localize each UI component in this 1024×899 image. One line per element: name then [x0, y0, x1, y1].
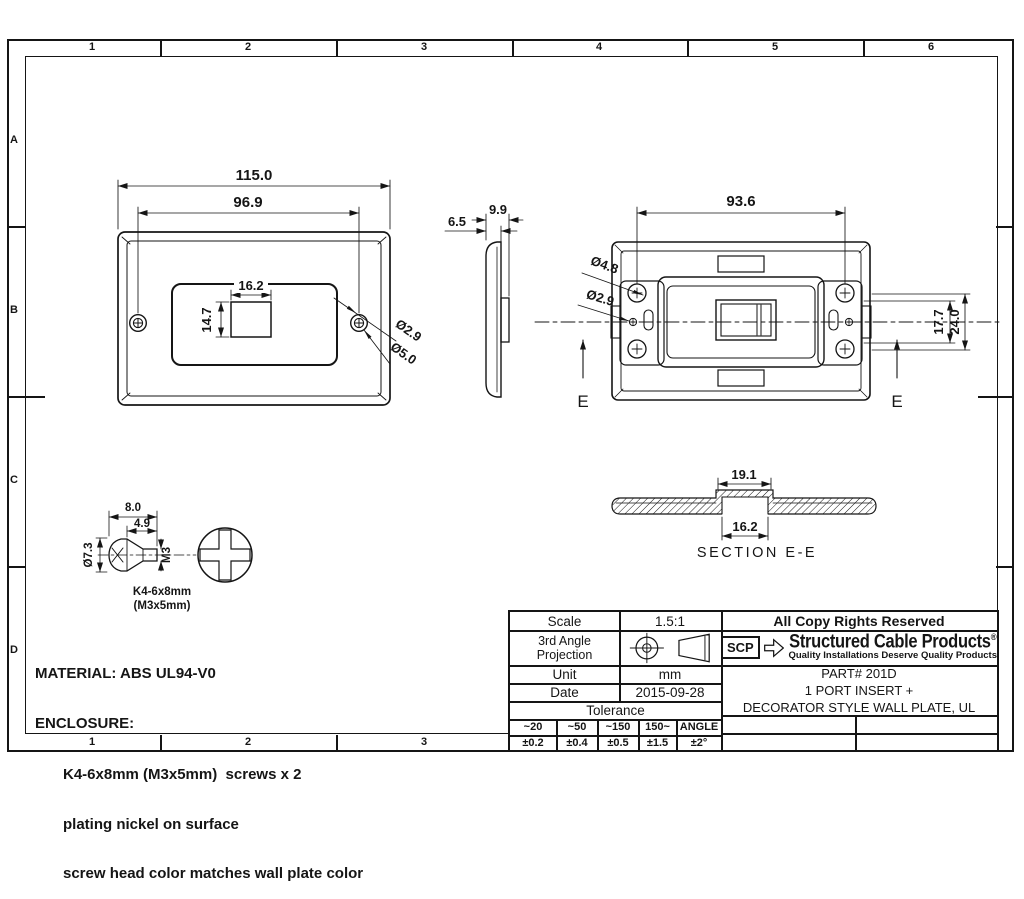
- front-screw-right: [351, 315, 368, 332]
- rear-bracket-right: [818, 281, 871, 365]
- dim-front-hole-span: 96.9: [233, 194, 262, 211]
- scale-label: Scale: [510, 612, 619, 630]
- note-item-screws: K4-6x8mm (M3x5mm) screws x 2: [35, 767, 363, 784]
- tol-value-20: ±0.2: [510, 735, 556, 750]
- tol-value-angle: ±2°: [677, 735, 721, 750]
- part-number: PART# 201D: [821, 665, 896, 682]
- rear-view: 93.6 Ø4.8 Ø2.9 17.7 24.0 E E: [535, 193, 1002, 411]
- dim-side-depth-total: 9.9: [489, 202, 507, 217]
- part-desc-1: 1 PORT INSERT +: [805, 682, 914, 699]
- screw-detail: 8.0 4.9 Ø7.3 M3 K4-6x8mm (M3x5mm): [83, 502, 252, 612]
- brand-tagline: Quality Installations Deserve Quality Pr…: [788, 651, 997, 661]
- tol-header-angle: ANGLE: [677, 719, 721, 735]
- dim-screw-head: Ø7.3: [83, 543, 95, 568]
- dim-rear-boss-span: 93.6: [726, 193, 755, 210]
- dim-screw-thread: M3: [161, 547, 173, 563]
- date-value: 2015-09-28: [619, 683, 721, 701]
- tolerance-label: Tolerance: [510, 701, 721, 719]
- title-block: Scale 1.5:1 3rd Angle Projection Unit mm…: [508, 610, 999, 752]
- note-item-plating: plating nickel on surface: [35, 817, 363, 834]
- copyright-text: All Copy Rights Reserved: [721, 612, 997, 630]
- third-angle-projection-icon: [620, 631, 720, 665]
- tol-header-150plus: 150~: [639, 719, 676, 735]
- tol-header-150: ~150: [598, 719, 638, 735]
- dim-side-depth-body: 6.5: [448, 214, 466, 229]
- dim-front-opening-width: 16.2: [238, 278, 263, 293]
- note-material: MATERIAL: ABS UL94-V0: [35, 666, 363, 683]
- dim-front-opening-height: 14.7: [199, 307, 214, 332]
- brand-text-wrap: Structured Cable Products® Quality Insta…: [788, 634, 997, 661]
- date-label: Date: [510, 683, 619, 701]
- side-view: 9.9 6.5: [445, 202, 523, 397]
- logo-arrow-icon: [764, 636, 785, 660]
- unit-label: Unit: [510, 665, 619, 683]
- note-item-color: screw head color matches wall plate colo…: [35, 866, 363, 883]
- dim-rear-bracket-outer: 24.0: [947, 309, 962, 334]
- screw-head-front-view: [198, 528, 252, 582]
- projection-line2: Projection: [537, 648, 593, 662]
- section-caption: SECTION E-E: [697, 545, 817, 561]
- note-enclosure: ENCLOSURE:: [35, 716, 363, 733]
- dim-section-opening-width: 16.2: [732, 519, 757, 534]
- dim-screw-length: 8.0: [125, 502, 141, 514]
- unit-value: mm: [619, 665, 721, 683]
- projection-line1: 3rd Angle: [538, 634, 591, 648]
- dim-section-boss-width: 19.1: [731, 467, 756, 482]
- section-marker-left: E: [577, 392, 588, 411]
- tol-value-150plus: ±1.5: [639, 735, 676, 750]
- tol-value-50: ±0.4: [557, 735, 597, 750]
- tol-value-150: ±0.5: [598, 735, 638, 750]
- scp-logo: SCP: [721, 636, 760, 659]
- section-marker-right: E: [891, 392, 902, 411]
- tol-header-20: ~20: [510, 719, 556, 735]
- dim-rear-boss-hole: Ø4.8: [589, 253, 621, 277]
- part-info: PART# 201D 1 PORT INSERT + DECORATOR STY…: [721, 665, 997, 715]
- screw-spec-line1: K4-6x8mm: [133, 586, 191, 598]
- brand-row: SCP Structured Cable Products® Quality I…: [721, 630, 997, 665]
- dim-rear-bracket-inner: 17.7: [931, 309, 946, 334]
- part-desc-2: DECORATOR STYLE WALL PLATE, UL: [743, 699, 975, 716]
- front-screw-left: [130, 315, 147, 332]
- section-view: 19.1 16.2 SECTION E-E: [612, 467, 876, 561]
- brand-name: Structured Cable Products®: [789, 633, 996, 653]
- dim-screw-shaft: 4.9: [134, 518, 150, 530]
- scale-value: 1.5:1: [619, 612, 721, 630]
- material-notes: MATERIAL: ABS UL94-V0 ENCLOSURE: K4-6x8m…: [35, 633, 363, 899]
- projection-label: 3rd Angle Projection: [510, 630, 619, 665]
- projection-symbol: [619, 630, 721, 665]
- screw-spec-line2: (M3x5mm): [134, 600, 191, 612]
- tol-header-50: ~50: [557, 719, 597, 735]
- dim-front-overall-width: 115.0: [236, 167, 273, 184]
- registered-mark: ®: [991, 632, 997, 642]
- front-view: 115.0 96.9 16.2 14.7 Ø2.9 Ø5.0: [118, 167, 424, 405]
